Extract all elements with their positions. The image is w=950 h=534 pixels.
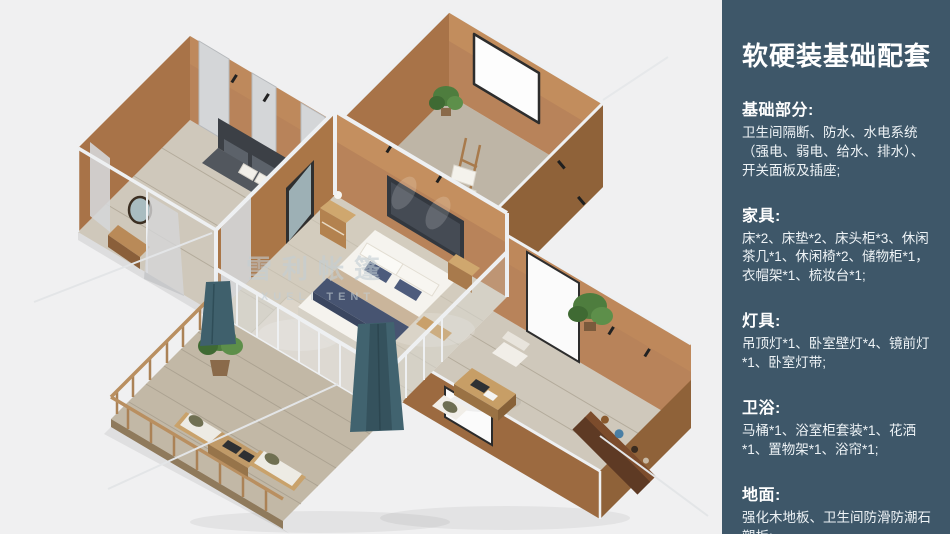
spec-section-basics: 基础部分: 卫生间隔断、防水、水电系统（强电、弱电、给水、排水）、开关面板及插座… (742, 96, 934, 181)
spec-section-bathroom: 卫浴: 马桶*1、浴室柜套装*1、花洒*1、置物架*1、浴帘*1; (742, 394, 934, 460)
watermark: 雪利帐篷 XUELI TENT (246, 254, 390, 303)
spec-body-basics: 卫生间隔断、防水、水电系统（强电、弱电、给水、排水）、开关面板及插座; (742, 124, 934, 181)
spec-body-flooring: 强化木地板、卫生间防滑防潮石塑板; (742, 509, 934, 534)
spec-heading-bathroom: 卫浴: (742, 394, 934, 418)
slide: 雪利帐篷 XUELI TENT 软硬装基础配套 基础部分: 卫生间隔断、防水、水… (0, 0, 950, 534)
spec-heading-furniture: 家具: (742, 202, 934, 226)
spec-heading-flooring: 地面: (742, 481, 934, 505)
spec-body-lighting: 吊顶灯*1、卧室壁灯*4、镜前灯*1、卧室灯带; (742, 335, 934, 373)
spec-heading-basics: 基础部分: (742, 96, 934, 120)
spec-body-bathroom: 马桶*1、浴室柜套装*1、花洒*1、置物架*1、浴帘*1; (742, 422, 934, 460)
spec-heading-lighting: 灯具: (742, 307, 934, 331)
sidebar-title: 软硬装基础配套 (742, 42, 934, 72)
svg-text:雪利帐篷: 雪利帐篷 (246, 254, 390, 284)
render-area: 雪利帐篷 XUELI TENT (0, 0, 722, 534)
svg-text:XUELI TENT: XUELI TENT (261, 291, 375, 303)
spec-sidebar: 软硬装基础配套 基础部分: 卫生间隔断、防水、水电系统（强电、弱电、给水、排水）… (722, 0, 950, 534)
floorplan-illustration: 雪利帐篷 XUELI TENT (0, 0, 722, 534)
spec-section-flooring: 地面: 强化木地板、卫生间防滑防潮石塑板; (742, 481, 934, 534)
spec-section-furniture: 家具: 床*2、床垫*2、床头柜*3、休闲茶几*1、休闲椅*2、储物柜*1，衣帽… (742, 202, 934, 287)
spec-body-furniture: 床*2、床垫*2、床头柜*3、休闲茶几*1、休闲椅*2、储物柜*1，衣帽架*1、… (742, 230, 934, 287)
spec-section-lighting: 灯具: 吊顶灯*1、卧室壁灯*4、镜前灯*1、卧室灯带; (742, 307, 934, 373)
